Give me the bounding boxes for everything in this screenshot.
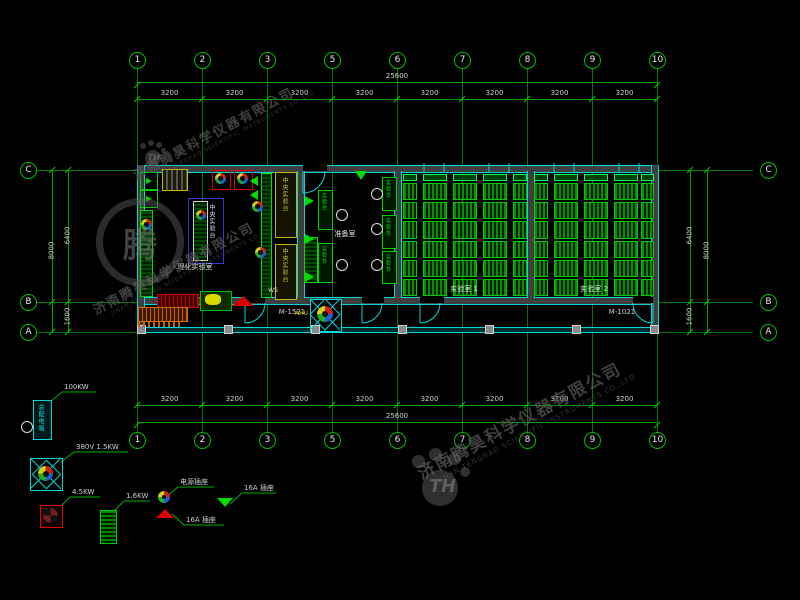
legend-label: 1.6KW bbox=[126, 493, 166, 500]
dim-chain-line bbox=[137, 422, 657, 423]
dim-bay-bottom: 3200 bbox=[415, 396, 445, 403]
room-label-middle: 准备室 bbox=[326, 229, 364, 239]
bench-column-room2 bbox=[614, 174, 638, 296]
bench-sink-cap bbox=[513, 174, 527, 181]
dim-bay-top: 3200 bbox=[415, 90, 445, 97]
dim-bay-top: 3200 bbox=[480, 90, 510, 97]
bench-cell bbox=[534, 202, 548, 219]
grid-bubble-bottom: 3 bbox=[259, 432, 276, 449]
arrow-box: ▶ bbox=[140, 190, 158, 208]
cad-floorplan-drawing: 1122335566778899101025600256003200320032… bbox=[0, 0, 800, 600]
stool bbox=[371, 188, 383, 200]
bench-cell bbox=[584, 183, 608, 200]
bench-cell bbox=[453, 221, 477, 238]
bench-cell bbox=[614, 241, 638, 258]
bench-sink-cap bbox=[403, 174, 417, 181]
dim-bay-bottom: 3200 bbox=[610, 396, 640, 403]
bench-cell bbox=[513, 260, 527, 277]
instrument-bench-label: 实验台 bbox=[321, 193, 326, 225]
bench-cell bbox=[554, 202, 578, 219]
bench-cell bbox=[403, 221, 417, 238]
dim-bay-bottom: 3200 bbox=[545, 396, 575, 403]
stool bbox=[371, 223, 383, 235]
arrow-box: ▶ bbox=[140, 172, 158, 190]
bench-column-room1 bbox=[453, 174, 477, 296]
bench-cell bbox=[513, 241, 527, 258]
legend-label: 4.5KW bbox=[72, 489, 112, 496]
dim-left-total: 8000 bbox=[49, 233, 56, 269]
wall-post bbox=[398, 325, 407, 334]
fan-unit bbox=[38, 466, 53, 481]
wall-post bbox=[224, 325, 233, 334]
bench-cell bbox=[554, 221, 578, 238]
bench-cell bbox=[554, 260, 578, 277]
bench-cell bbox=[513, 279, 527, 296]
instrument-bench-label: 实验台 bbox=[385, 180, 390, 206]
grid-bubble-left: C bbox=[20, 162, 37, 179]
instrument-bench-label: 实验台 bbox=[385, 218, 390, 244]
grid-bubble-bottom: 7 bbox=[454, 432, 471, 449]
grid-bubble-bottom: 2 bbox=[194, 432, 211, 449]
bench-cell bbox=[614, 260, 638, 277]
grid-row-line-right bbox=[657, 332, 753, 333]
grid-bubble-bottom: 5 bbox=[324, 432, 341, 449]
bench-cell bbox=[641, 202, 654, 219]
bench-cell bbox=[614, 183, 638, 200]
room-label-2: 实验室 2 bbox=[566, 284, 622, 294]
bench-sink-cap bbox=[584, 174, 608, 181]
grid-bubble-top: 3 bbox=[259, 52, 276, 69]
fan-unit bbox=[252, 201, 263, 212]
mobile-equipment-pad bbox=[205, 294, 221, 305]
legend-distribution-box-text: 总配电箱 bbox=[37, 404, 43, 434]
bench-cell bbox=[641, 241, 654, 258]
bench-cell bbox=[483, 221, 507, 238]
legend-label: 16A 插座 bbox=[186, 517, 230, 524]
dim-right-lower: 1600 bbox=[687, 299, 694, 335]
fan-unit bbox=[255, 247, 266, 258]
dim-bay-top: 3200 bbox=[220, 90, 250, 97]
dim-right-total: 8000 bbox=[704, 233, 711, 269]
dim-bay-bottom: 3200 bbox=[480, 396, 510, 403]
dim-bay-bottom: 3200 bbox=[350, 396, 380, 403]
bench-sink-cap bbox=[534, 174, 548, 181]
vent-arrow bbox=[250, 190, 258, 200]
dim-chain-line bbox=[137, 405, 657, 406]
dim-bay-bottom: 3200 bbox=[220, 396, 250, 403]
grid-bubble-top: 7 bbox=[454, 52, 471, 69]
bench-cell bbox=[423, 202, 447, 219]
dim-bay-top: 3200 bbox=[155, 90, 185, 97]
bench-cell bbox=[453, 202, 477, 219]
dim-total-bottom: 25600 bbox=[372, 413, 422, 420]
wall-vent bbox=[305, 196, 314, 206]
grid-bubble-right: B bbox=[760, 294, 777, 311]
bench-cell bbox=[513, 221, 527, 238]
bench-cell bbox=[641, 260, 654, 277]
bench-sink-cap bbox=[641, 174, 654, 181]
central-bench-label: 中央实验台 bbox=[281, 248, 287, 294]
central-bench-label: 中央实验台 bbox=[281, 177, 287, 231]
wall-post bbox=[650, 325, 659, 334]
bench-cell bbox=[483, 202, 507, 219]
bench-cell bbox=[423, 241, 447, 258]
floor-socket-red bbox=[232, 296, 254, 306]
dim-chain-line bbox=[137, 82, 657, 83]
grid-bubble-top: 2 bbox=[194, 52, 211, 69]
bench-sink-cap bbox=[453, 174, 477, 181]
bench-cell bbox=[554, 183, 578, 200]
bench-column-room1 bbox=[513, 174, 527, 296]
bench-cell bbox=[453, 183, 477, 200]
grid-bubble-top: 1 bbox=[129, 52, 146, 69]
bench-sink-cap bbox=[614, 174, 638, 181]
dim-bay-bottom: 3200 bbox=[285, 396, 315, 403]
dim-bay-top: 3200 bbox=[285, 90, 315, 97]
bench-cell bbox=[584, 241, 608, 258]
vent-arrow bbox=[250, 176, 258, 186]
legend-label: 16A 插座 bbox=[244, 485, 288, 492]
dim-bay-top: 3200 bbox=[610, 90, 640, 97]
bench-column-room2 bbox=[584, 174, 608, 296]
instrument-bench-label: 实验台 bbox=[385, 254, 390, 279]
grid-bubble-right: C bbox=[760, 162, 777, 179]
dim-chain-line bbox=[137, 99, 657, 100]
bench-column-room1 bbox=[423, 174, 447, 296]
bench-cell bbox=[534, 279, 548, 296]
bench-cell bbox=[403, 202, 417, 219]
bench-cell bbox=[423, 221, 447, 238]
grid-bubble-top: 9 bbox=[584, 52, 601, 69]
bench-cell bbox=[641, 183, 654, 200]
watermark-logo-th: TH bbox=[148, 153, 160, 162]
dim-bay-top: 3200 bbox=[350, 90, 380, 97]
grid-bubble-right: A bbox=[760, 324, 777, 341]
radiator-red bbox=[157, 294, 199, 308]
wall-post bbox=[311, 325, 320, 334]
dim-bay-top: 3200 bbox=[545, 90, 575, 97]
dim-right-upper: 6400 bbox=[687, 218, 694, 254]
bench-cell bbox=[584, 202, 608, 219]
bench-cell bbox=[423, 183, 447, 200]
wall-post bbox=[485, 325, 494, 334]
fan-unit bbox=[215, 173, 226, 184]
grid-bubble-bottom: 9 bbox=[584, 432, 601, 449]
wall-vent bbox=[305, 272, 314, 282]
bench-cell bbox=[423, 260, 447, 277]
dim-left-upper: 6400 bbox=[65, 218, 72, 254]
watermark-company-cn: 济南腾昊科学仪器有限公司 bbox=[412, 351, 633, 484]
bench-cell bbox=[453, 241, 477, 258]
bench-column-room2 bbox=[641, 174, 654, 296]
door-opening bbox=[362, 297, 384, 303]
storage-cabinet bbox=[162, 169, 188, 191]
radiator-orange bbox=[138, 307, 188, 322]
legend-radiator-green bbox=[100, 510, 117, 544]
bench-cell bbox=[534, 221, 548, 238]
bench-cell bbox=[403, 241, 417, 258]
bench-sink-cap bbox=[554, 174, 578, 181]
bench-cell bbox=[403, 260, 417, 277]
grid-row-line-left bbox=[36, 332, 137, 333]
bench-cell bbox=[614, 202, 638, 219]
fan-unit bbox=[196, 210, 206, 220]
bench-cell bbox=[403, 183, 417, 200]
stool bbox=[336, 209, 348, 221]
wall-post bbox=[572, 325, 581, 334]
bench-cell bbox=[534, 260, 548, 277]
bench-cell bbox=[614, 221, 638, 238]
bench-cell bbox=[534, 241, 548, 258]
dim-total-top: 25600 bbox=[372, 73, 422, 80]
central-bench-label: 中央实验台 bbox=[208, 204, 214, 258]
bench-cell bbox=[513, 183, 527, 200]
bench-column-room1 bbox=[403, 174, 417, 296]
bench-cell bbox=[453, 260, 477, 277]
door-opening bbox=[420, 297, 444, 303]
legend-handle-circle bbox=[21, 421, 33, 433]
bench-column-room2 bbox=[554, 174, 578, 296]
bench-cell bbox=[483, 241, 507, 258]
watermark-logo-paw: TH bbox=[412, 448, 470, 506]
grid-bubble-top: 10 bbox=[649, 52, 666, 69]
side-bench-mid bbox=[261, 173, 272, 298]
bench-cell bbox=[584, 260, 608, 277]
stool bbox=[371, 259, 383, 271]
door-opening bbox=[633, 297, 653, 303]
bench-column-room2 bbox=[534, 174, 548, 296]
bench-cell bbox=[534, 183, 548, 200]
dim-left-lower: 1600 bbox=[65, 299, 72, 335]
door-label-right: M-1021 bbox=[592, 309, 652, 316]
fan-unit bbox=[141, 219, 152, 230]
ws-label: WS bbox=[266, 288, 280, 294]
bench-cell bbox=[641, 279, 654, 296]
grid-bubble-top: 8 bbox=[519, 52, 536, 69]
grid-row-line-right bbox=[657, 170, 753, 171]
bench-cell bbox=[483, 260, 507, 277]
wall-vent bbox=[305, 234, 314, 244]
ahu-label: AHU bbox=[288, 310, 308, 317]
bench-cell bbox=[403, 279, 417, 296]
grid-bubble-top: 6 bbox=[389, 52, 406, 69]
grid-bubble-bottom: 10 bbox=[649, 432, 666, 449]
grid-bubble-left: A bbox=[20, 324, 37, 341]
bench-sink-cap bbox=[483, 174, 507, 181]
legend-label: 电源插座 bbox=[180, 479, 220, 486]
watermark-text: 济南腾昊科学仪器有限公司JINAN TENGHAO SCIENTIFIC INS… bbox=[412, 351, 637, 491]
room-label-left: 理化实验室 bbox=[163, 262, 227, 272]
watermark-logo-paw: TH bbox=[140, 140, 166, 166]
grid-bubble-bottom: 8 bbox=[519, 432, 536, 449]
legend-fan-red-rotor bbox=[43, 508, 58, 523]
watermark-company-en: JINAN TENGHAO SCIENTIFIC INSTRUMENTS CO.… bbox=[436, 373, 637, 485]
fan-unit bbox=[237, 173, 248, 184]
grid-bubble-top: 5 bbox=[324, 52, 341, 69]
legend-label: 380V 1.5KW bbox=[76, 444, 136, 451]
bench-cell bbox=[483, 183, 507, 200]
legend-label: 100KW bbox=[64, 384, 104, 391]
door-opening bbox=[303, 165, 327, 171]
dim-bay-bottom: 3200 bbox=[155, 396, 185, 403]
bench-sink-cap bbox=[423, 174, 447, 181]
legend-socket-red bbox=[156, 509, 174, 518]
bench-column-room1 bbox=[483, 174, 507, 296]
wall-vent bbox=[355, 171, 367, 180]
bench-cell bbox=[584, 221, 608, 238]
grid-bubble-bottom: 6 bbox=[389, 432, 406, 449]
grid-row-line-right bbox=[657, 302, 753, 303]
bench-cell bbox=[554, 241, 578, 258]
bench-cell bbox=[641, 221, 654, 238]
grid-bubble-left: B bbox=[20, 294, 37, 311]
instrument-bench-label: 实验台 bbox=[321, 246, 326, 278]
stool bbox=[336, 259, 348, 271]
bench-cell bbox=[513, 202, 527, 219]
room-label-1: 实验室 1 bbox=[436, 284, 492, 294]
radiator-orange-ticks bbox=[138, 322, 182, 327]
watermark-logo-th: TH bbox=[429, 477, 455, 497]
legend-socket-green bbox=[217, 498, 233, 507]
